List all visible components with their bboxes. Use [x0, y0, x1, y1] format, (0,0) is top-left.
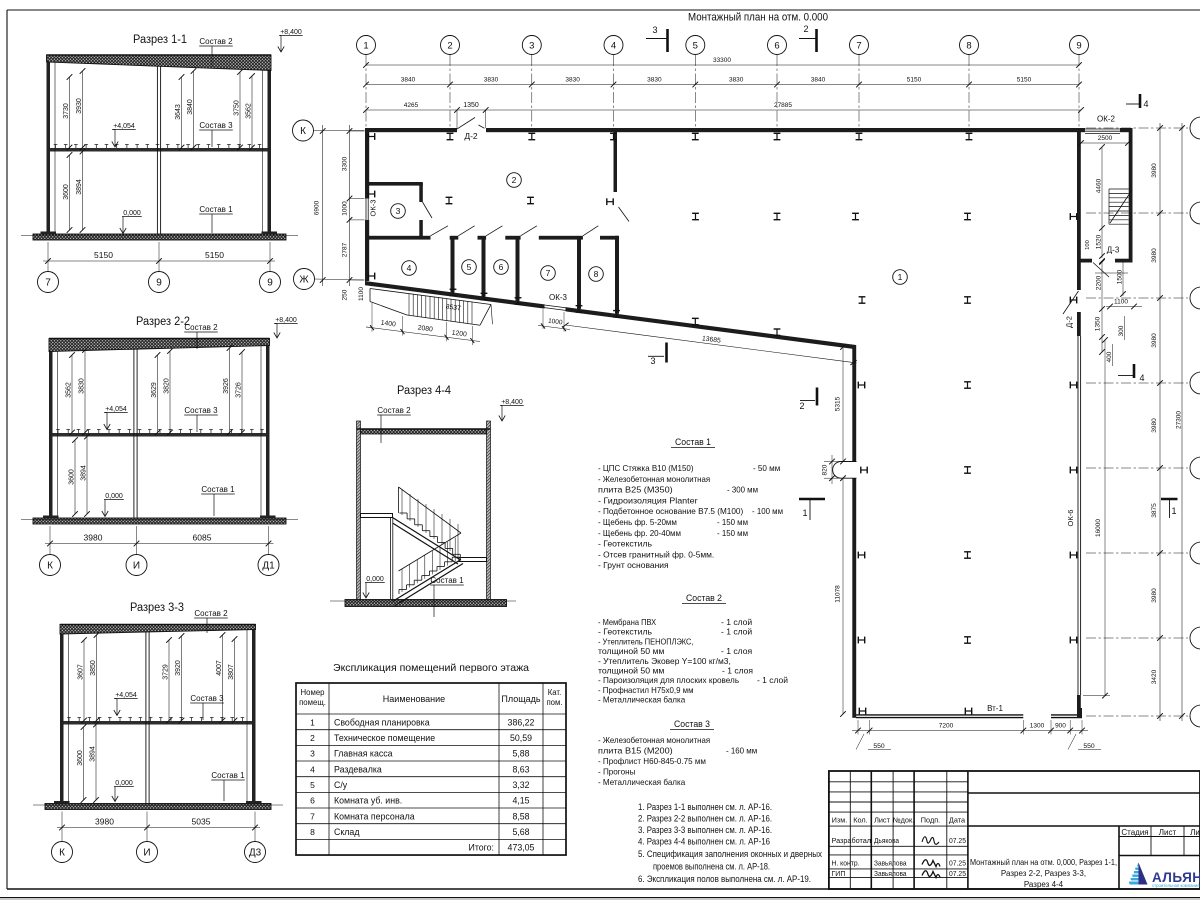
svg-text:- Щебень фр. 20-40мм: - Щебень фр. 20-40мм [598, 529, 681, 538]
svg-text:9: 9 [156, 278, 162, 289]
svg-text:0,000: 0,000 [123, 210, 141, 217]
svg-text:3926: 3926 [223, 378, 230, 394]
svg-text:+8,400: +8,400 [275, 317, 297, 324]
svg-text:900: 900 [1055, 723, 1066, 730]
svg-text:7: 7 [310, 811, 315, 821]
svg-text:3: 3 [529, 40, 534, 51]
svg-text:К: К [59, 848, 65, 859]
svg-text:2: 2 [512, 175, 517, 185]
svg-text:0,000: 0,000 [105, 493, 123, 500]
svg-text:07.25: 07.25 [949, 871, 966, 878]
svg-text:Состав 2: Состав 2 [377, 406, 411, 415]
svg-text:И: И [133, 561, 140, 572]
svg-text:3980: 3980 [1151, 248, 1158, 263]
svg-text:- Железобетонная монолитная: - Железобетонная монолитная [598, 475, 710, 484]
svg-text:820: 820 [822, 464, 829, 475]
svg-text:ОК-2: ОК-2 [1097, 115, 1116, 124]
svg-text:3840: 3840 [401, 77, 416, 84]
svg-text:Разрез 4-4: Разрез 4-4 [1024, 880, 1064, 889]
svg-text:2. Разрез 2-2 выполнен см. л.: 2. Разрез 2-2 выполнен см. л. АР-16. [638, 814, 772, 824]
svg-text:100: 100 [1085, 240, 1091, 250]
svg-text:- 1 слоя: - 1 слоя [722, 667, 753, 676]
svg-text:50,59: 50,59 [510, 733, 532, 743]
svg-text:+8,400: +8,400 [501, 399, 523, 406]
svg-text:7: 7 [546, 268, 551, 278]
svg-text:Состав 3: Состав 3 [184, 406, 218, 415]
svg-text:6: 6 [774, 40, 779, 51]
svg-text:3730: 3730 [63, 103, 70, 119]
svg-text:Состав 2: Состав 2 [184, 323, 218, 332]
svg-text:5. Спецификация заполнения око: 5. Спецификация заполнения оконных и две… [638, 849, 822, 859]
svg-text:3,32: 3,32 [512, 780, 529, 790]
svg-text:2200: 2200 [1096, 275, 1103, 290]
svg-text:Д1: Д1 [262, 561, 275, 572]
svg-text:2500: 2500 [1098, 135, 1113, 142]
svg-text:3600: 3600 [63, 184, 70, 200]
svg-text:07.25: 07.25 [949, 861, 966, 868]
svg-text:Экспликация помещений первого: Экспликация помещений первого этажа [333, 662, 529, 674]
svg-text:8: 8 [966, 40, 971, 51]
svg-text:Лист: Лист [1159, 828, 1177, 837]
svg-text:1. Разрез 1-1 выполнен см. л.: 1. Разрез 1-1 выполнен см. л. АР-16. [638, 802, 772, 812]
svg-text:3: 3 [650, 356, 655, 366]
svg-text:473,05: 473,05 [508, 843, 535, 853]
svg-text:Состав 1: Состав 1 [199, 205, 233, 214]
svg-text:- 1 слоя: - 1 слоя [721, 647, 752, 656]
svg-text:5: 5 [310, 780, 315, 790]
svg-text:толщиной 50 мм: толщиной 50 мм [598, 647, 665, 656]
svg-text:ОК-3: ОК-3 [549, 293, 568, 302]
svg-text:Разрез 1-1: Разрез 1-1 [133, 34, 187, 46]
svg-text:Изм.: Изм. [832, 816, 848, 825]
svg-text:5,68: 5,68 [512, 827, 529, 837]
svg-text:3750: 3750 [234, 100, 241, 116]
svg-text:4: 4 [310, 764, 315, 774]
svg-text:К: К [300, 126, 306, 137]
svg-text:помещ.: помещ. [299, 698, 326, 707]
svg-text:1350: 1350 [1095, 316, 1102, 331]
svg-text:- Щебень фр. 5-20мм: - Щебень фр. 5-20мм [598, 518, 677, 527]
svg-text:Главная касса: Главная касса [334, 749, 393, 759]
svg-text:3629: 3629 [151, 382, 158, 398]
svg-text:300: 300 [1118, 325, 1125, 336]
svg-text:Комната уб. инв.: Комната уб. инв. [334, 796, 402, 806]
svg-text:5150: 5150 [907, 77, 922, 84]
svg-text:Разрез 4-4: Разрез 4-4 [397, 385, 452, 397]
svg-text:Свободная планировка: Свободная планировка [334, 717, 430, 727]
svg-text:8,58: 8,58 [512, 811, 529, 821]
svg-text:3. Разрез 3-3 выполнен см. л.: 3. Разрез 3-3 выполнен см. л. АР-16. [638, 825, 772, 835]
svg-text:8: 8 [594, 269, 599, 279]
svg-text:- 1 слой: - 1 слой [721, 618, 752, 627]
svg-text:- Профнастил Н75х0,9 мм: - Профнастил Н75х0,9 мм [598, 686, 694, 695]
svg-text:550: 550 [1083, 743, 1095, 750]
svg-text:3930: 3930 [76, 98, 83, 114]
svg-text:Номер: Номер [301, 688, 326, 697]
svg-text:Завьялова: Завьялова [874, 871, 907, 878]
svg-text:3830: 3830 [647, 77, 662, 84]
svg-text:0,000: 0,000 [366, 576, 384, 583]
svg-text:Итого:: Итого: [469, 843, 495, 853]
svg-text:1520: 1520 [1096, 234, 1103, 249]
svg-text:3820: 3820 [164, 378, 171, 394]
svg-text:- 150 мм: - 150 мм [717, 518, 748, 527]
svg-text:Н. контр.: Н. контр. [832, 861, 860, 868]
svg-text:Дьякова: Дьякова [874, 838, 899, 845]
svg-text:5315: 5315 [835, 396, 842, 411]
svg-text:4460: 4460 [1096, 178, 1103, 193]
svg-text:4007: 4007 [216, 660, 223, 676]
svg-text:2: 2 [799, 401, 804, 411]
svg-text:- Гидроизоляция Planter: - Гидроизоляция Planter [598, 496, 698, 505]
svg-text:3920: 3920 [175, 660, 182, 676]
svg-text:- Утеплитель Эковер Y=100 кг/м: - Утеплитель Эковер Y=100 кг/м3, [598, 657, 731, 666]
svg-text:- 1 слой: - 1 слой [757, 676, 788, 685]
svg-text:3980: 3980 [1151, 333, 1158, 348]
svg-text:2: 2 [310, 733, 315, 743]
svg-text:Д-2: Д-2 [1065, 316, 1074, 328]
svg-text:3830: 3830 [729, 77, 744, 84]
svg-text:Кат.: Кат. [548, 688, 562, 697]
svg-text:Ж: Ж [299, 275, 309, 286]
svg-text:ОК-6: ОК-6 [1066, 510, 1075, 527]
svg-text:3830: 3830 [484, 77, 499, 84]
svg-text:Разрез 3-3: Разрез 3-3 [130, 602, 184, 614]
svg-text:- Металлическая балка: - Металлическая балка [598, 778, 686, 787]
svg-text:5150: 5150 [205, 250, 224, 260]
svg-text:плита В25 (М350): плита В25 (М350) [598, 486, 673, 495]
svg-text:3980: 3980 [1151, 163, 1158, 178]
svg-text:Лист: Лист [874, 816, 891, 825]
svg-text:250: 250 [342, 289, 349, 300]
svg-text:4. Разрез 4-4 выполнен см. л.: 4. Разрез 4-4 выполнен см. л. АР-16 [638, 837, 770, 847]
svg-text:Монтажный план на отм. 0,000,: Монтажный план на отм. 0,000, Разрез 1-1… [970, 858, 1117, 867]
svg-text:- ЦПС Стяжка В10 (М150): - ЦПС Стяжка В10 (М150) [598, 464, 694, 473]
svg-text:3894: 3894 [81, 465, 88, 481]
svg-text:4: 4 [407, 263, 412, 273]
svg-text:Состав 2: Состав 2 [199, 37, 233, 46]
svg-text:Состав 3: Состав 3 [190, 694, 224, 703]
svg-text:3830: 3830 [79, 378, 86, 394]
svg-text:Д3: Д3 [249, 848, 262, 859]
svg-text:Д-2: Д-2 [464, 131, 478, 141]
svg-text:И: И [143, 848, 150, 859]
svg-text:1: 1 [1171, 506, 1176, 516]
svg-text:- Прогоны: - Прогоны [598, 768, 636, 777]
svg-text:Монтажный план на отм. 0.000: Монтажный план на отм. 0.000 [688, 12, 828, 24]
svg-text:3840: 3840 [811, 77, 826, 84]
svg-text:9: 9 [267, 278, 273, 289]
svg-text:Состав 2: Состав 2 [686, 593, 722, 603]
svg-text:2: 2 [447, 40, 452, 51]
svg-text:ОК-3: ОК-3 [369, 200, 378, 217]
svg-text:- 100 мм: - 100 мм [752, 507, 783, 516]
svg-text:3600: 3600 [69, 469, 76, 485]
svg-text:33300: 33300 [713, 57, 731, 64]
svg-text:5,88: 5,88 [512, 749, 529, 759]
svg-text:386,22: 386,22 [508, 717, 535, 727]
svg-text:Д-3: Д-3 [1107, 246, 1120, 255]
svg-text:4: 4 [1143, 99, 1148, 109]
svg-text:6085: 6085 [193, 533, 212, 543]
svg-text:8: 8 [310, 827, 315, 837]
svg-text:Техническое помещение: Техническое помещение [334, 733, 435, 743]
svg-text:3726: 3726 [236, 382, 243, 398]
svg-text:3: 3 [396, 206, 401, 216]
svg-text:3807: 3807 [228, 664, 235, 680]
svg-text:16000: 16000 [1095, 519, 1102, 537]
svg-text:проемов выполнена см. л. АР-18: проемов выполнена см. л. АР-18. [653, 862, 770, 872]
svg-text:1: 1 [363, 40, 368, 51]
svg-text:11078: 11078 [835, 585, 842, 603]
svg-text:ГИП: ГИП [832, 871, 846, 878]
svg-text:- Грунт основания: - Грунт основания [598, 561, 669, 570]
svg-text:2787: 2787 [342, 242, 349, 257]
svg-text:Состав 3: Состав 3 [199, 121, 233, 130]
svg-text:3840: 3840 [187, 99, 194, 115]
svg-text:Площадь: Площадь [501, 694, 540, 704]
svg-text:6900: 6900 [314, 200, 321, 215]
svg-text:+8,400: +8,400 [280, 29, 302, 36]
svg-text:Разрез 2-2, Разрез 3-3,: Разрез 2-2, Разрез 3-3, [1001, 869, 1086, 878]
svg-text:- Подбетонное основание В7.5 (: - Подбетонное основание В7.5 (М100) [598, 507, 743, 516]
svg-text:1: 1 [310, 717, 315, 727]
svg-text:Дата: Дата [949, 816, 966, 825]
svg-text:- Мембрана ПВХ: - Мембрана ПВХ [598, 618, 657, 627]
svg-text:Стадия: Стадия [1121, 828, 1148, 837]
svg-text:7: 7 [856, 40, 861, 51]
svg-text:1000: 1000 [342, 201, 349, 216]
svg-text:Кол.: Кол. [853, 816, 867, 825]
svg-text:9: 9 [1076, 40, 1081, 51]
svg-text:- 1 слой: - 1 слой [721, 628, 752, 637]
svg-text:1300: 1300 [1030, 723, 1045, 730]
svg-text:5: 5 [467, 262, 472, 272]
svg-text:27300: 27300 [1176, 411, 1183, 429]
svg-text:+4,054: +4,054 [113, 123, 135, 130]
svg-text:- 150 мм: - 150 мм [717, 529, 748, 538]
svg-text:8,63: 8,63 [512, 764, 529, 774]
svg-text:- Утеплитель ПЕНОПЛЭКС,: - Утеплитель ПЕНОПЛЭКС, [598, 637, 694, 646]
svg-text:7: 7 [45, 278, 51, 289]
svg-text:3600: 3600 [77, 750, 84, 766]
svg-text:Состав 1: Состав 1 [675, 437, 711, 447]
svg-text:Разрез 2-2: Разрез 2-2 [136, 316, 190, 328]
svg-text:3562: 3562 [246, 103, 253, 119]
svg-text:Завьялова: Завьялова [874, 861, 907, 868]
svg-text:№док.: №док. [893, 816, 914, 825]
svg-text:пом.: пом. [546, 698, 562, 707]
svg-text:3607: 3607 [78, 664, 85, 680]
svg-text:1100: 1100 [358, 287, 365, 301]
svg-text:3643: 3643 [175, 104, 182, 120]
svg-text:1500: 1500 [1117, 269, 1124, 284]
svg-text:Разработал: Разработал [832, 837, 872, 845]
svg-text:- Металлическая балка: - Металлическая балка [598, 696, 686, 705]
svg-text:Лис: Лис [1190, 828, 1200, 837]
svg-text:3: 3 [652, 25, 657, 35]
svg-text:7200: 7200 [939, 723, 954, 730]
svg-text:Состав 3: Состав 3 [674, 719, 710, 729]
svg-text:- 300 мм: - 300 мм [727, 486, 758, 495]
svg-text:5150: 5150 [94, 250, 113, 260]
svg-text:3729: 3729 [163, 664, 170, 680]
svg-text:1350: 1350 [463, 102, 479, 109]
svg-text:3980: 3980 [1151, 588, 1158, 603]
svg-text:3894: 3894 [90, 746, 97, 762]
svg-text:3300: 3300 [342, 156, 349, 171]
svg-text:3850: 3850 [90, 660, 97, 676]
svg-text:Комната персонала: Комната персонала [334, 811, 415, 821]
svg-text:толщиной 50 мм: толщиной 50 мм [598, 667, 665, 676]
svg-text:+4,054: +4,054 [105, 406, 127, 413]
svg-text:С/у: С/у [334, 780, 348, 790]
svg-text:3420: 3420 [1151, 669, 1158, 684]
svg-text:- 160 мм: - 160 мм [726, 747, 758, 756]
svg-text:400: 400 [1106, 351, 1113, 362]
svg-text:550: 550 [873, 743, 885, 750]
svg-text:Наименование: Наименование [383, 694, 445, 704]
svg-text:Состав 2: Состав 2 [194, 609, 228, 618]
svg-text:6. Экспликация полов выполнена: 6. Экспликация полов выполнена см. л. АР… [638, 874, 811, 884]
svg-text:строительная компания: строительная компания [1152, 883, 1200, 888]
svg-text:Вт-1: Вт-1 [987, 704, 1003, 713]
svg-text:К: К [47, 561, 53, 572]
svg-text:- Геотекстиль: - Геотекстиль [598, 540, 652, 549]
svg-text:- Профлист Н60-845-0.75 мм: - Профлист Н60-845-0.75 мм [598, 757, 706, 766]
svg-text:- 50 мм: - 50 мм [753, 464, 781, 473]
svg-text:4: 4 [611, 40, 616, 51]
svg-text:5035: 5035 [192, 817, 211, 827]
svg-text:Состав 1: Состав 1 [201, 485, 235, 494]
svg-text:3980: 3980 [84, 533, 103, 543]
svg-text:1: 1 [898, 272, 903, 282]
svg-text:- Отсев гранитный фр. 0-5мм.: - Отсев гранитный фр. 0-5мм. [598, 550, 714, 559]
svg-text:07.25: 07.25 [949, 838, 966, 845]
svg-text:4265: 4265 [404, 102, 419, 109]
svg-text:27885: 27885 [774, 102, 792, 109]
svg-text:плита В15 (М200): плита В15 (М200) [598, 747, 673, 756]
svg-text:- Пароизоляция для плоских кро: - Пароизоляция для плоских кровель [598, 676, 739, 685]
svg-text:4: 4 [1139, 373, 1144, 383]
svg-text:Подп.: Подп. [921, 816, 940, 825]
svg-text:0,000: 0,000 [115, 780, 133, 787]
svg-text:3562: 3562 [66, 382, 73, 398]
svg-text:+4,054: +4,054 [115, 692, 137, 699]
svg-text:3980: 3980 [1151, 418, 1158, 433]
svg-text:3980: 3980 [95, 817, 114, 827]
svg-text:6: 6 [499, 262, 504, 272]
svg-text:6: 6 [310, 796, 315, 806]
svg-text:Состав 1: Состав 1 [211, 771, 245, 780]
svg-text:5150: 5150 [1017, 77, 1032, 84]
svg-text:1: 1 [802, 508, 807, 518]
svg-text:3830: 3830 [565, 77, 580, 84]
svg-text:3875: 3875 [1151, 503, 1158, 518]
svg-text:Раздевалка: Раздевалка [334, 764, 382, 774]
svg-text:1100: 1100 [1114, 299, 1128, 306]
svg-text:5: 5 [693, 40, 698, 51]
svg-text:3894: 3894 [76, 179, 83, 195]
svg-text:4,15: 4,15 [512, 796, 529, 806]
svg-text:2: 2 [803, 24, 808, 34]
svg-text:3: 3 [310, 749, 315, 759]
svg-text:- Железобетонная монолитная: - Железобетонная монолитная [598, 736, 710, 745]
svg-text:- Геотекстиль: - Геотекстиль [598, 628, 652, 637]
svg-text:Склад: Склад [334, 827, 359, 837]
